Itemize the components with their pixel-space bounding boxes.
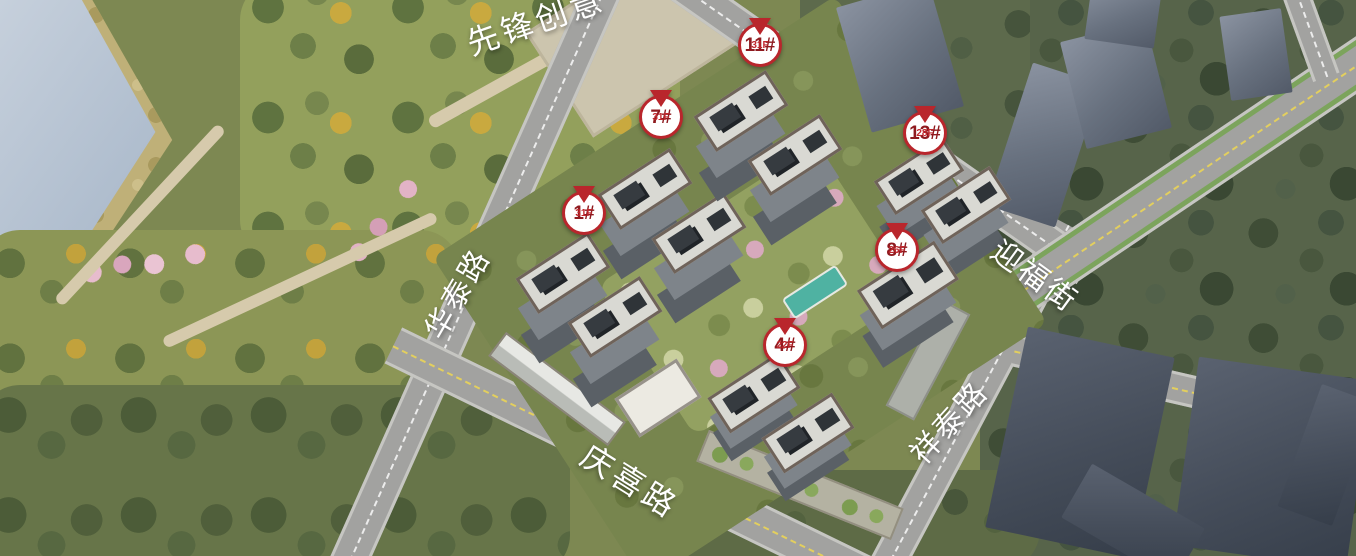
- pin-pointer: [774, 318, 796, 335]
- building-floors: 31F: [575, 209, 592, 219]
- pin-pointer: [914, 106, 936, 123]
- building-floors: 31F: [652, 113, 669, 123]
- pin-pointer: [573, 186, 595, 203]
- building-floors: 28F: [916, 129, 933, 139]
- aerial-site-map: 先锋创意 华泰路 迎福街 庆喜路 祥泰路 1# 31F 4# 22F 7# 31…: [0, 0, 1356, 556]
- building-floors: 26F: [888, 246, 905, 256]
- pin-pointer: [886, 223, 908, 240]
- building-floors: 31F: [751, 41, 768, 51]
- building-floors: 22F: [776, 341, 793, 351]
- pin-pointer: [749, 18, 771, 35]
- city-building: [1219, 8, 1292, 101]
- pin-pointer: [650, 90, 672, 107]
